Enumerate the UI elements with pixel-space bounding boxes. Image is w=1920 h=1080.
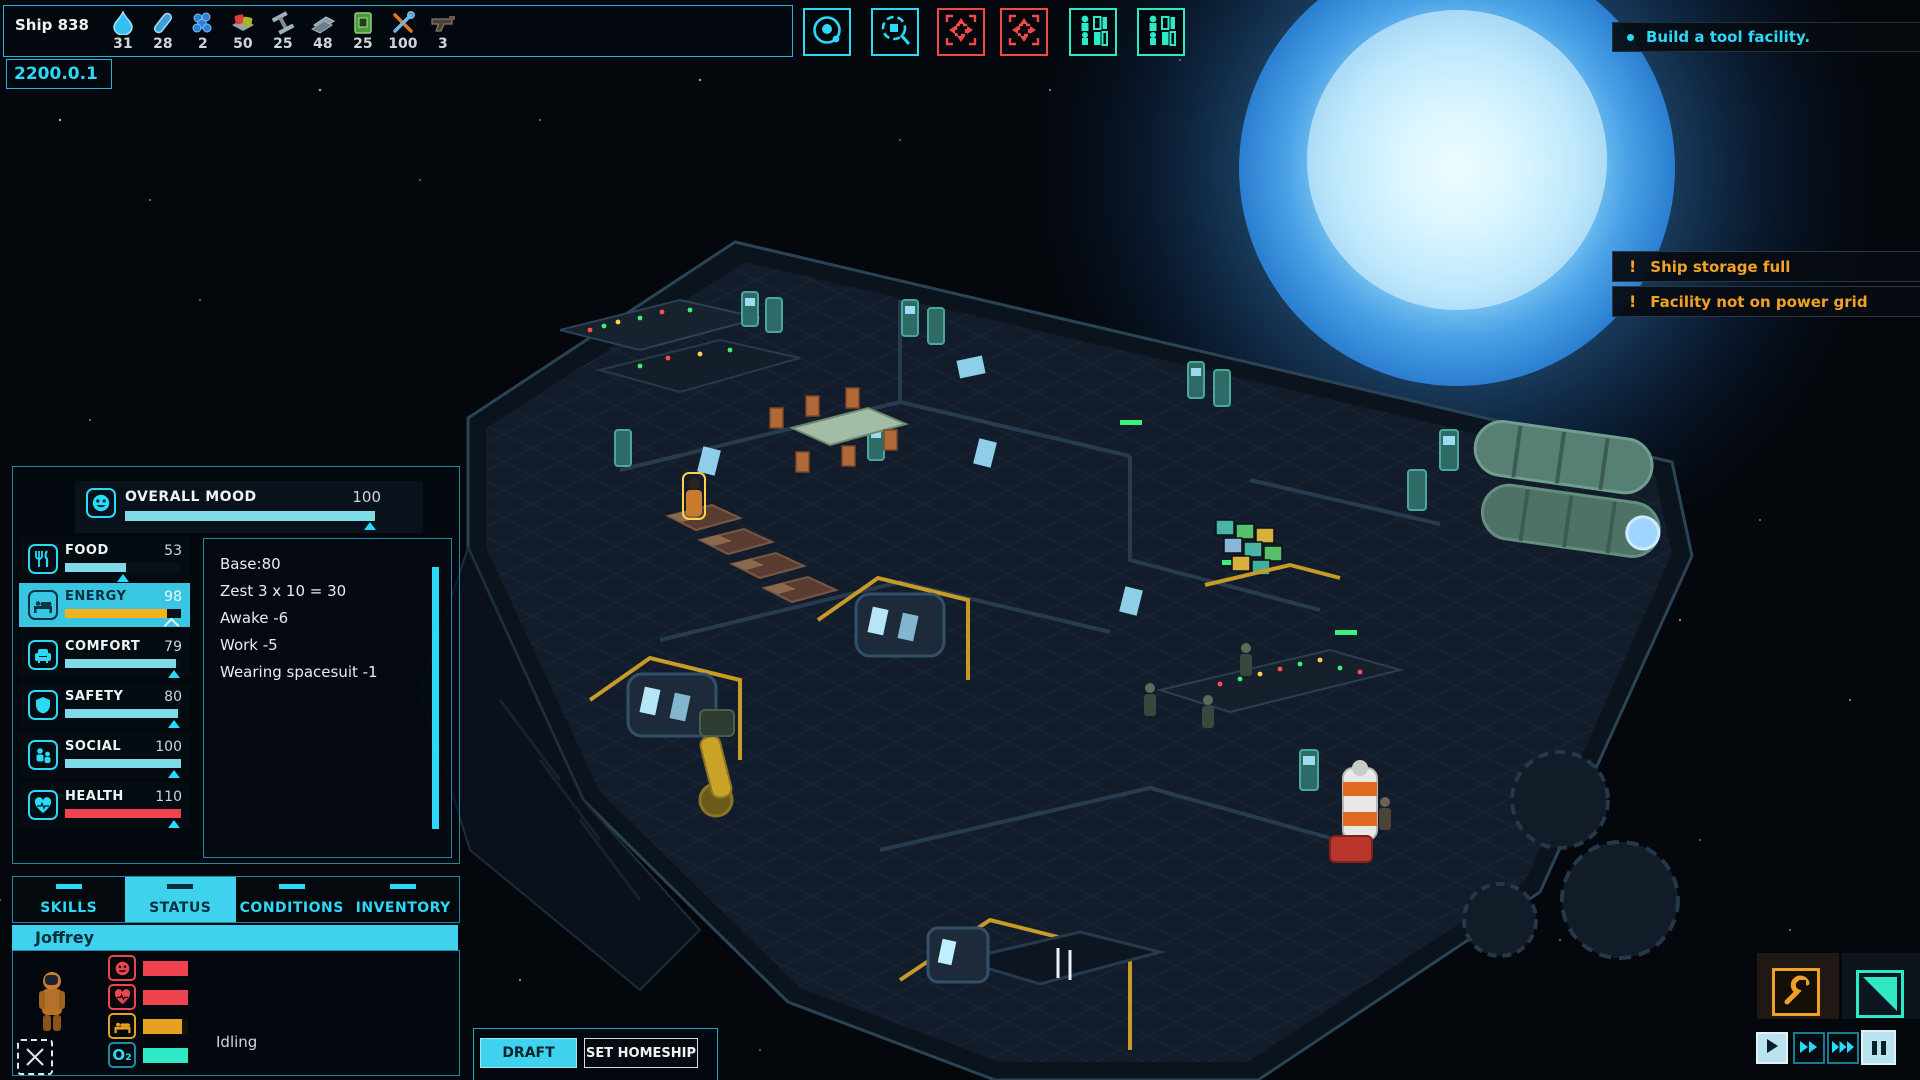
crew-avatar[interactable]	[35, 971, 69, 1037]
tab-inventory[interactable]: INVENTORY	[348, 877, 460, 922]
alert-text: Facility not on power grid	[1650, 293, 1867, 311]
move-alert-icon	[944, 13, 978, 51]
comfort-need-icon	[28, 640, 58, 670]
fastest-forward-icon	[1831, 1039, 1855, 1058]
exclamation-icon: !	[1629, 292, 1636, 311]
oxygen-icon: O₂	[108, 1042, 136, 1068]
crew-name-bar[interactable]: Joffrey	[12, 925, 458, 950]
tab-conditions[interactable]: CONDITIONS	[236, 877, 348, 922]
energy-need-icon	[28, 590, 58, 620]
energy-bed-icon	[108, 1013, 136, 1039]
health-need-icon	[28, 790, 58, 820]
wrench-icon	[1780, 974, 1812, 1010]
need-row-health[interactable]: HEALTH 110	[19, 783, 190, 827]
bullet-icon	[1627, 34, 1634, 41]
resource-energy-rod[interactable]: 28	[143, 11, 183, 52]
safety-need-icon	[28, 690, 58, 720]
alert-storage-full[interactable]: ! Ship storage full	[1612, 251, 1920, 282]
diagonal-icon	[1863, 977, 1897, 1011]
resource-tools[interactable]: 100	[383, 11, 423, 52]
game-screen: { "colors":{"accent":"#2bd9f8","warning"…	[0, 0, 1920, 1080]
move-alert-icon	[1007, 13, 1041, 51]
ship-name: Ship 838	[4, 16, 103, 46]
exclamation-icon: !	[1629, 257, 1636, 276]
energy-rod-icon	[151, 11, 175, 35]
water-icon	[112, 11, 134, 35]
social-need-icon	[28, 740, 58, 770]
breakdown-line: Wearing spacesuit -1	[220, 663, 451, 681]
orbit-view-button[interactable]	[803, 8, 851, 56]
resource-bar: Ship 838 31 28 2 50 25 48 25 100 3	[3, 5, 793, 57]
resource-weapons[interactable]: 3	[423, 11, 463, 52]
hull-block-icon	[310, 11, 336, 35]
mood-icon	[108, 955, 136, 981]
mood-breakdown-panel: Base:80 Zest 3 x 10 = 30 Awake -6 Work -…	[203, 538, 452, 858]
need-row-comfort[interactable]: COMFORT 79	[19, 633, 190, 677]
fast-forward-icon	[1799, 1039, 1819, 1058]
orbit-view-icon	[810, 13, 844, 51]
need-row-energy[interactable]: ENERGY 98	[19, 583, 190, 627]
resource-energium[interactable]: 2	[183, 11, 223, 52]
health-icon	[108, 984, 136, 1010]
play-button[interactable]	[1756, 1032, 1788, 1064]
alert-text: Ship storage full	[1650, 258, 1790, 276]
deselect-crew-button[interactable]	[17, 1039, 53, 1075]
set-homeship-button[interactable]: SET HOMESHIP	[584, 1038, 698, 1068]
crew-manage-icon	[1144, 13, 1178, 51]
breakdown-line: Zest 3 x 10 = 30	[220, 582, 451, 600]
crew-status-text: Idling	[216, 1033, 257, 1051]
mood-bar	[125, 511, 383, 521]
crew-card: O₂ Idling	[12, 950, 460, 1076]
breakdown-line: Work -5	[220, 636, 451, 654]
play-icon	[1764, 1038, 1780, 1058]
infra-block-icon	[271, 11, 295, 35]
tools-icon	[391, 11, 415, 35]
weapon-icon	[429, 11, 457, 35]
food-need-icon	[28, 544, 58, 574]
mood-icon	[86, 488, 116, 518]
tab-skills[interactable]: SKILLS	[13, 877, 125, 922]
tech-block-icon	[352, 11, 374, 35]
need-row-food[interactable]: FOOD 53	[19, 537, 190, 581]
pause-icon	[1872, 1041, 1886, 1055]
mood-value: 100	[352, 488, 381, 506]
resource-tech-block[interactable]: 25	[343, 11, 383, 52]
food-icon	[230, 11, 256, 35]
crew-actions-bar: DRAFT SET HOMESHIP	[473, 1028, 718, 1080]
need-row-safety[interactable]: SAFETY 80	[19, 683, 190, 727]
crew-manage-icon	[1076, 13, 1110, 51]
scan-view-icon	[878, 13, 912, 51]
crew-tabs: SKILLS STATUS CONDITIONS INVENTORY	[12, 876, 460, 923]
resource-food[interactable]: 50	[223, 11, 263, 52]
scrollbar[interactable]	[432, 567, 439, 829]
resource-hull-block[interactable]: 48	[303, 11, 343, 52]
crew-manage-button-2[interactable]	[1137, 8, 1185, 56]
move-alert-button-1[interactable]	[937, 8, 985, 56]
fastest-forward-button[interactable]	[1827, 1032, 1859, 1064]
alert-power-grid[interactable]: ! Facility not on power grid	[1612, 286, 1920, 317]
energium-icon	[191, 11, 215, 35]
overall-mood-row[interactable]: OVERALL MOOD 100	[75, 481, 423, 533]
resource-water[interactable]: 31	[103, 11, 143, 52]
mood-marker	[364, 522, 376, 530]
mood-label: OVERALL MOOD	[125, 489, 257, 505]
objective-item[interactable]: Build a tool facility.	[1612, 22, 1920, 52]
move-alert-button-2[interactable]	[1000, 8, 1048, 56]
objective-text: Build a tool facility.	[1646, 28, 1810, 46]
game-date: 2200.0.1	[6, 59, 112, 89]
draft-button[interactable]: DRAFT	[480, 1038, 577, 1068]
build-tools-button[interactable]	[1772, 968, 1820, 1016]
pause-button[interactable]	[1861, 1030, 1896, 1065]
breakdown-line: Awake -6	[220, 609, 451, 627]
draw-mode-button[interactable]	[1856, 970, 1904, 1018]
scan-view-button[interactable]	[871, 8, 919, 56]
resource-infra-block[interactable]: 25	[263, 11, 303, 52]
crew-manage-button-1[interactable]	[1069, 8, 1117, 56]
tab-status[interactable]: STATUS	[125, 877, 237, 922]
need-row-social[interactable]: SOCIAL 100	[19, 733, 190, 777]
breakdown-line: Base:80	[220, 539, 451, 573]
fast-forward-button[interactable]	[1793, 1032, 1825, 1064]
